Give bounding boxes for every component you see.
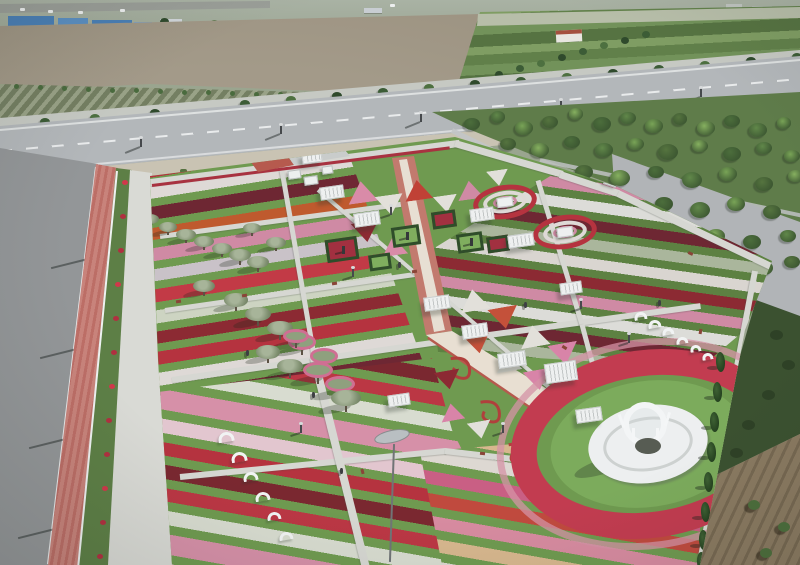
lamp-head	[299, 422, 303, 425]
tree	[690, 202, 710, 218]
building	[8, 16, 54, 26]
lamp-pole	[280, 125, 282, 134]
umbrella-tree-canopy	[243, 223, 261, 233]
tree	[642, 31, 650, 38]
umbrella-tree-canopy	[245, 307, 271, 321]
lamp-pole	[352, 268, 354, 277]
tree	[645, 119, 663, 133]
lamp-pole	[140, 138, 142, 147]
statue	[342, 246, 345, 254]
statue	[470, 238, 473, 246]
parterre-bed	[431, 210, 457, 230]
umbrella-tree-canopy	[194, 236, 214, 247]
rose-bush	[109, 384, 115, 389]
gazebo-interior	[635, 438, 661, 454]
person	[340, 468, 343, 474]
lamp-shadow	[380, 214, 390, 219]
bench	[480, 452, 485, 456]
tree	[743, 235, 761, 249]
lamp-head	[351, 266, 355, 269]
lamp-pole	[628, 334, 630, 343]
rose-bush	[115, 282, 121, 287]
tree	[515, 121, 533, 135]
person	[658, 300, 661, 306]
booth	[321, 165, 333, 174]
distant-vehicle	[78, 11, 83, 14]
tree	[516, 65, 524, 72]
sapling	[230, 91, 235, 96]
lamp-head	[389, 204, 393, 207]
rose-bush	[113, 316, 119, 321]
tree	[491, 111, 505, 122]
rose-bush	[122, 180, 128, 185]
shrub	[770, 330, 783, 340]
booth	[303, 175, 318, 186]
sapling	[38, 85, 43, 90]
tree	[697, 121, 715, 135]
tree	[658, 144, 678, 160]
tree	[610, 170, 630, 186]
lamp-head	[501, 422, 505, 425]
gazebo-column	[632, 428, 635, 442]
umbrella-tree-canopy	[176, 229, 196, 240]
tree	[579, 48, 587, 55]
tree	[569, 108, 583, 119]
person	[312, 392, 315, 398]
lamp-head	[699, 86, 703, 89]
pergola	[353, 210, 381, 227]
lamp-pole	[502, 424, 504, 433]
tree	[777, 117, 791, 128]
parterre-bed	[486, 235, 510, 254]
tree	[723, 147, 741, 161]
sapling	[110, 88, 115, 93]
person	[524, 302, 527, 308]
tree	[621, 37, 629, 44]
shrub	[762, 390, 775, 400]
tree	[537, 60, 545, 67]
shrub	[742, 420, 755, 430]
umbrella-tree-canopy	[283, 329, 309, 343]
parterre-bed	[368, 253, 392, 272]
shrub	[730, 448, 743, 458]
tree	[600, 42, 608, 49]
distant-vehicle	[120, 9, 125, 12]
sapling	[86, 87, 91, 92]
lamp-head	[579, 298, 583, 301]
tree	[673, 113, 687, 124]
rose-bush	[97, 554, 103, 559]
booth	[287, 169, 301, 180]
sapling	[14, 84, 19, 89]
statue	[406, 232, 409, 240]
umbrella-tree-canopy	[303, 362, 333, 379]
rose-bush	[100, 520, 106, 525]
person	[398, 262, 401, 268]
lamp-head	[627, 332, 631, 335]
tree	[719, 167, 737, 181]
tree	[558, 54, 566, 61]
building	[364, 8, 382, 13]
tree	[500, 138, 516, 151]
lamp-pole	[700, 88, 702, 97]
distant-vehicle	[390, 4, 395, 7]
aerial-photo-flower-garden	[0, 0, 800, 565]
sapling	[182, 90, 187, 95]
tree	[593, 117, 611, 131]
umbrella-tree-canopy	[193, 280, 215, 292]
lamp-pole	[390, 206, 392, 215]
lamp-head	[559, 98, 563, 101]
lamp-pole	[420, 113, 422, 122]
shrub	[782, 360, 795, 370]
rose-bush	[120, 214, 126, 219]
umbrella-tree-canopy	[277, 359, 303, 373]
person	[246, 350, 249, 356]
rose-bush	[106, 418, 112, 423]
tree	[595, 143, 613, 157]
umbrella-tree-canopy	[331, 390, 361, 407]
farmhouse	[556, 29, 583, 42]
distant-vehicle	[48, 10, 53, 13]
lamp-pole	[580, 300, 582, 309]
sapling	[206, 90, 211, 95]
rose-bush	[118, 248, 124, 253]
tree	[749, 123, 767, 137]
umbrella-tree-canopy	[159, 222, 177, 232]
tree	[531, 143, 549, 157]
tree	[755, 177, 773, 191]
umbrella-tree-canopy	[247, 256, 269, 268]
rose-bush	[102, 486, 108, 491]
tree	[727, 197, 745, 211]
sapling	[134, 88, 139, 93]
lamp-head	[279, 123, 283, 126]
distant-vehicle	[20, 8, 25, 11]
umbrella-tree-canopy	[266, 237, 286, 248]
lamp-head	[419, 111, 423, 114]
rose-bush	[111, 350, 117, 355]
tree	[788, 170, 800, 183]
tree	[748, 500, 760, 510]
sapling	[158, 89, 163, 94]
lamp-head	[139, 136, 143, 139]
tree	[763, 205, 781, 219]
tree	[760, 548, 772, 558]
tree	[682, 172, 702, 188]
tree	[778, 522, 790, 532]
rose-bush	[104, 452, 110, 457]
lamp-pole	[300, 424, 302, 433]
umbrella-tree-canopy	[256, 345, 280, 358]
sapling	[62, 86, 67, 91]
